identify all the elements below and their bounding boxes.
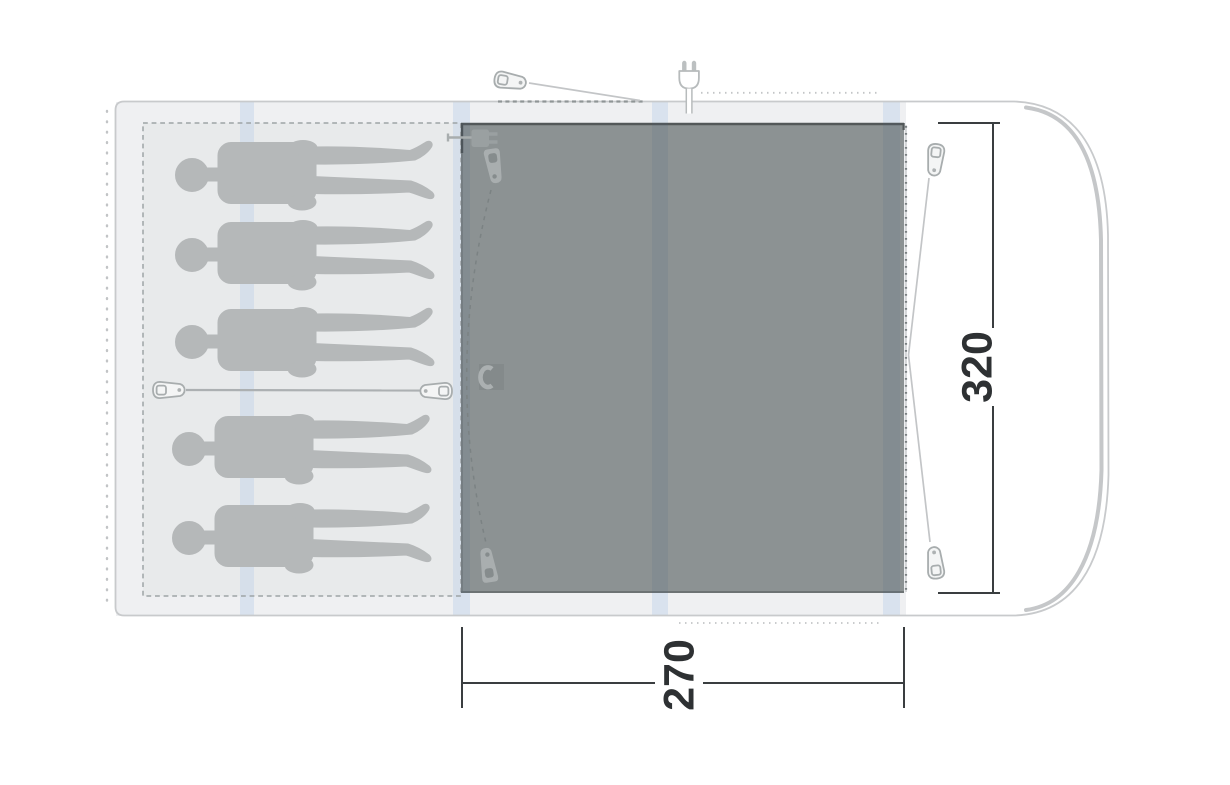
svg-text:320: 320 — [953, 331, 1001, 403]
svg-text:270: 270 — [655, 639, 703, 711]
